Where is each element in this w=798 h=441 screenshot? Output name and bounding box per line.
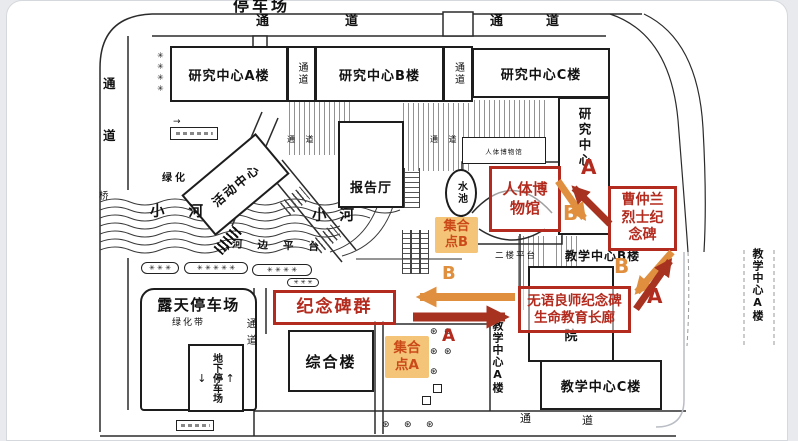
route-arrows-layer: [0, 0, 798, 441]
route-letter-b: B: [563, 203, 578, 223]
campus-map-screenshot: 研究中心A楼 通道 研究中心B楼 通道 研究中心C楼 研究中心 人体博物馆 报告…: [0, 0, 798, 441]
route-letter-a: A: [442, 328, 455, 345]
route-letter-a: A: [647, 286, 662, 306]
route-letter-b: B: [442, 265, 456, 283]
route-letter-b: B: [614, 256, 629, 276]
route-letter-a: A: [581, 157, 596, 177]
